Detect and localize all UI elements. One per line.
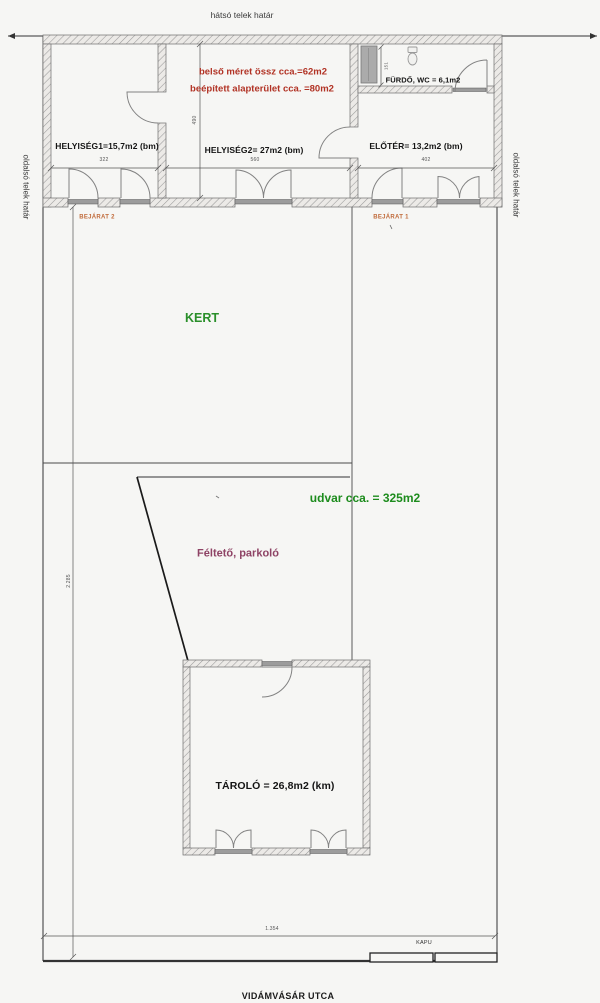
storage-walls <box>183 660 370 855</box>
room-label-helyiseg1: HELYISÉG1=15,7m2 (bm) <box>55 142 159 152</box>
dim-room2-width: 560 <box>251 158 260 164</box>
area-label-garden: KERT <box>185 311 219 325</box>
dim-plot-width: 1.354 <box>265 927 279 933</box>
area-label-yard: udvar cca. = 325m2 <box>310 492 420 506</box>
room-label-furdo: FÜRDŐ, WC = 6,1m2 <box>386 77 461 86</box>
building-walls <box>43 35 502 207</box>
door-swings <box>69 60 487 848</box>
room-label-helyiseg2: HELYISÉG2= 27m2 (bm) <box>205 146 304 156</box>
dim-room-depth: 490 <box>193 116 199 125</box>
left-boundary-label: oldalsó telek határ <box>21 155 30 220</box>
gate <box>370 953 497 962</box>
dim-plot-depth: 2.285 <box>67 574 73 588</box>
note-interior-size: belső méret össz cca.=62m2 <box>199 68 327 79</box>
street-label: VIDÁMVÁSÁR UTCA <box>242 991 335 1001</box>
toilet-icon <box>408 47 417 65</box>
dim-eloter-width: 402 <box>422 158 431 164</box>
dimension-lines <box>41 41 498 960</box>
right-boundary-label: oldalsó telek határ <box>511 153 520 218</box>
dim-room1-width: 322 <box>100 158 109 164</box>
entrance-label-bejarat1: BEJÁRAT 1 <box>373 215 409 222</box>
back-boundary-label: hátsó telek határ <box>211 11 274 21</box>
area-label-carport: Féltető, parkoló <box>197 548 279 561</box>
note-built-area: beépített alapterület cca. =80m2 <box>190 85 334 96</box>
plot-boundary <box>8 33 597 961</box>
shower-icon <box>361 46 377 83</box>
yard-lines <box>43 207 352 660</box>
dim-bath-depth: 151 <box>383 62 388 70</box>
room-label-tarolo: TÁROLÓ = 26,8m2 (km) <box>216 780 335 792</box>
entrance-label-bejarat2: BEJÁRAT 2 <box>79 215 115 222</box>
room-label-eloter: ELŐTÉR= 13,2m2 (bm) <box>369 142 462 152</box>
gate-label: KAPU <box>416 940 432 946</box>
